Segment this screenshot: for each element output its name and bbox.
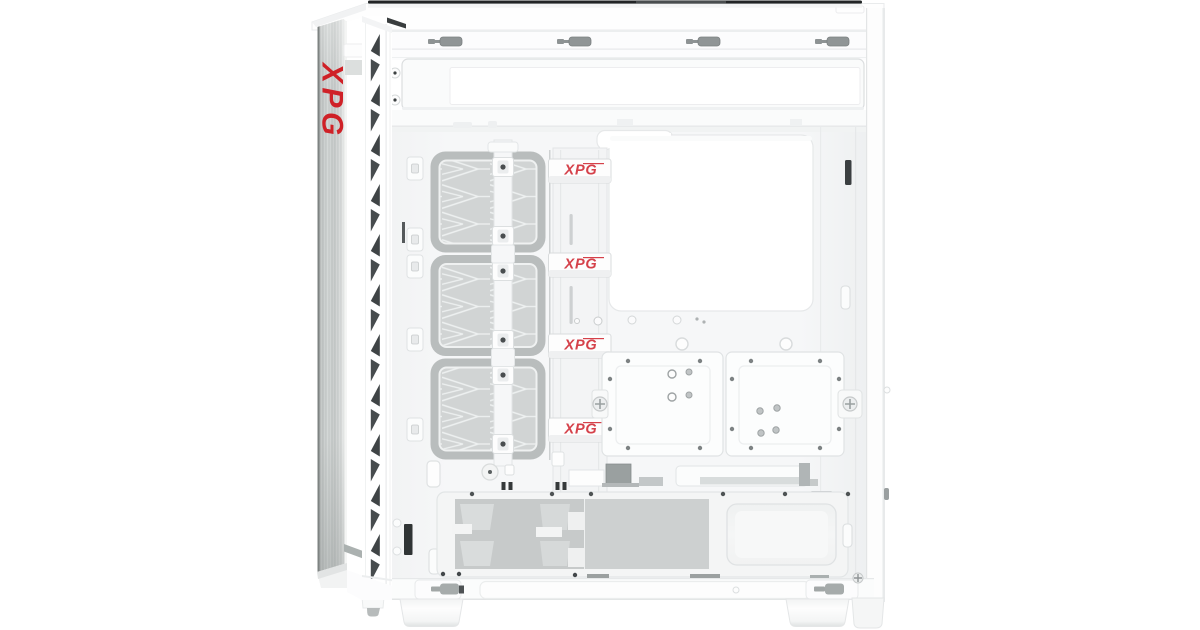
svg-text:XPG: XPG (563, 257, 597, 273)
svg-text:XPG: XPG (563, 422, 597, 438)
svg-text:XPG: XPG (563, 338, 597, 354)
svg-text:XPG: XPG (316, 61, 349, 140)
svg-text:XPG: XPG (563, 163, 597, 179)
